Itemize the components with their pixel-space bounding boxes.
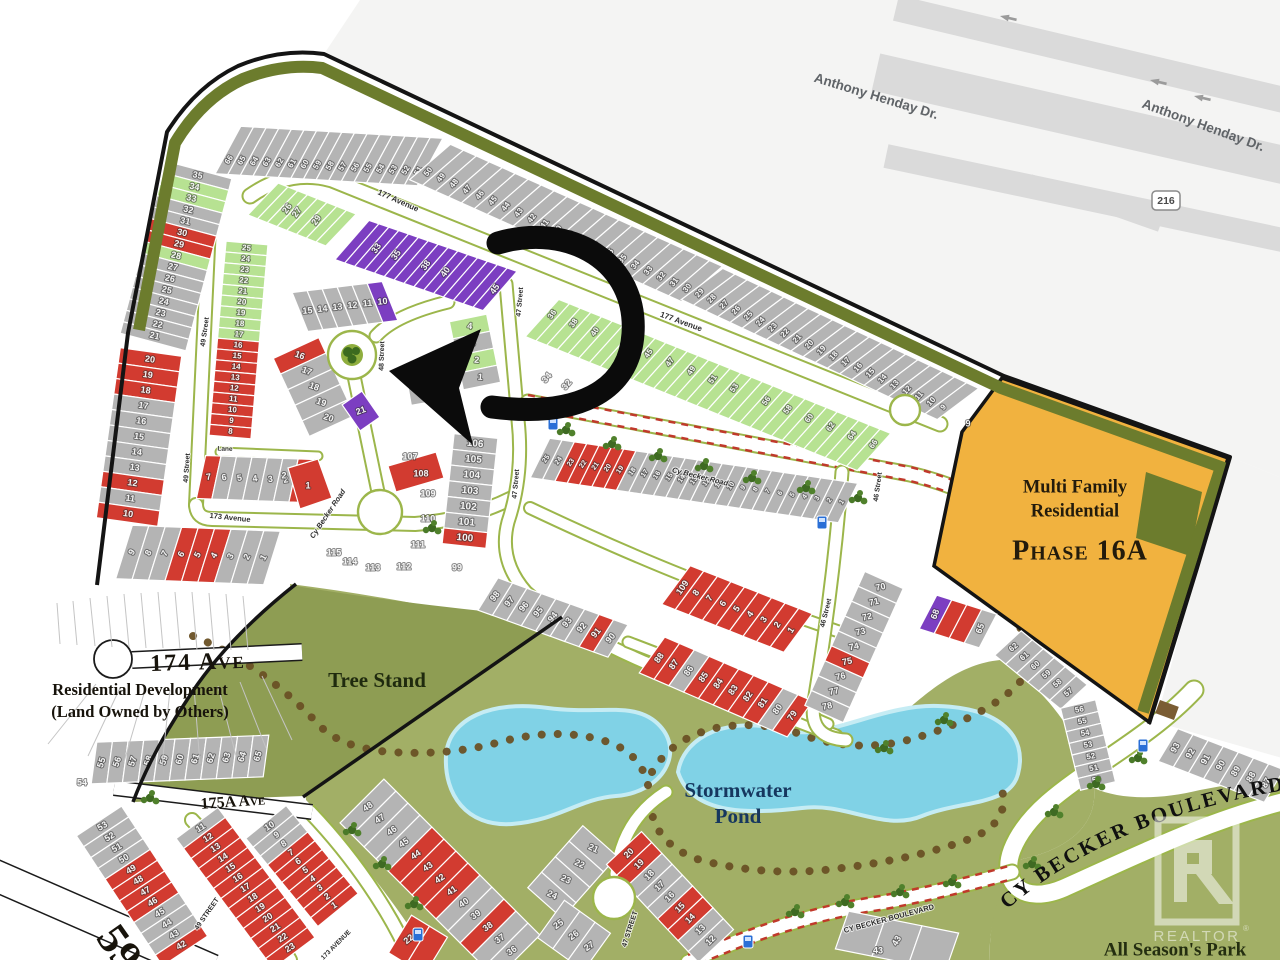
lot-number: 105 [465, 454, 483, 466]
lot-number: 31 [179, 215, 191, 227]
bus-stop-icon [743, 935, 753, 948]
lot-number: 102 [459, 501, 477, 513]
lot-number: 22 [152, 318, 164, 330]
street-label: Lane [217, 445, 233, 453]
lot-number: 14 [317, 303, 328, 314]
block-west-row-s: 987654321 [116, 525, 281, 584]
lot-number: 107 [402, 451, 417, 461]
lot-number: 10 [377, 296, 388, 307]
bus-stop-icon [1138, 739, 1148, 752]
label-res-dev-2: (Land Owned by Others) [51, 702, 228, 721]
lot-number: 13 [230, 372, 240, 382]
lot-number: 17 [138, 400, 149, 411]
realtor-logo-r [1174, 864, 1212, 874]
lot-number: 113 [366, 562, 381, 572]
lot-number: 25 [242, 243, 252, 253]
lot-number: 75 [841, 655, 853, 667]
plat-map-svg: 6665646362616059585756555453525150494847… [0, 0, 1280, 960]
lot-number: 18 [235, 319, 245, 329]
bus-stop-icon [413, 928, 423, 941]
lot-number: 4 [467, 321, 473, 331]
lot-number: 15 [232, 351, 242, 361]
label-mf-2: Residential [1031, 501, 1119, 521]
lot-number: 112 [397, 561, 412, 571]
lot-number: 22 [239, 275, 249, 285]
lot-number: 9 [965, 418, 970, 428]
label-res-dev-1: Residential Development [52, 680, 228, 699]
realtor-wordmark: REALTOR [1154, 928, 1241, 945]
lot-number: 12 [127, 477, 138, 488]
label-phase: Phase 16A [1012, 535, 1148, 566]
lot-number: 99 [452, 562, 462, 572]
label-tree-stand: Tree Stand [328, 668, 426, 692]
lot-number: 71 [868, 596, 880, 608]
lot-number: 78 [821, 700, 833, 712]
lot-number: 11 [362, 298, 372, 309]
plat-map: 6665646362616059585756555453525150494847… [0, 0, 1280, 960]
lot-number: 72 [861, 611, 873, 623]
lot-number: 100 [456, 532, 474, 544]
lot-number: 29 [173, 238, 185, 250]
lot-number: 28 [170, 249, 182, 261]
lot-number: 32 [182, 204, 194, 216]
cul-de-sac-bulb [94, 640, 132, 678]
lot-number: 74 [848, 640, 860, 652]
lot-number: 73 [855, 626, 867, 638]
lot-number: 10 [123, 508, 134, 519]
lot-number: 114 [343, 556, 358, 566]
lot-number: 15 [302, 305, 313, 316]
lot-number: 11 [125, 493, 136, 504]
lot-number: 23 [240, 265, 250, 275]
lot-number: 1 [305, 480, 310, 490]
tree-icon [352, 347, 360, 355]
registered-symbol: ® [1243, 924, 1249, 933]
lot-number: 12 [229, 383, 239, 393]
lot-number: 108 [413, 468, 428, 478]
lot-number: 15 [133, 431, 144, 442]
lot-number: 17 [234, 329, 244, 339]
lot-number: 19 [236, 308, 246, 318]
highway-216-shield: 216 [1152, 191, 1180, 210]
lot-number: 27 [167, 261, 179, 273]
cul-de-sac-bulb [890, 395, 920, 425]
lot-number: 101 [458, 516, 476, 528]
lot-number: 13 [332, 301, 343, 312]
road-lane [220, 452, 318, 456]
lot-number: 24 [241, 254, 251, 264]
label-mf-1: Multi Family [1023, 477, 1128, 497]
lot-number: 14 [131, 446, 142, 457]
lot-number: 25 [161, 284, 173, 296]
cul-de-sac-bulb [593, 877, 635, 919]
lot-number: 115 [327, 547, 342, 557]
shield-number: 216 [1157, 195, 1175, 207]
lot-number: 104 [463, 469, 481, 481]
lot-number: 16 [233, 340, 243, 350]
lot-number: 21 [149, 330, 161, 342]
cul-de-sac-bulb [328, 331, 376, 379]
label-stormwater: Stormwater [684, 778, 791, 802]
lot-number: 14 [231, 362, 241, 372]
label-pond: Pond [715, 804, 762, 828]
lot-number: 11 [229, 394, 239, 404]
lot-number: 54 [77, 777, 87, 787]
lot-number: 30 [176, 227, 188, 239]
lot-number: 77 [828, 685, 840, 697]
lot-number: 2 [281, 470, 286, 480]
lot-number: 13 [129, 462, 140, 473]
lot-number: 16 [136, 415, 147, 426]
lot-number: 19 [142, 369, 153, 380]
lot-number: 103 [461, 485, 479, 497]
lot-number: 20 [144, 353, 155, 364]
lot-number: 35 [192, 169, 204, 181]
lot-number: 1 [477, 372, 483, 382]
lot-number: 34 [189, 181, 201, 193]
lot-number: 76 [835, 670, 847, 682]
tree-icon [348, 355, 357, 364]
lot-number: 12 [347, 300, 358, 311]
cul-de-sac-bulb [358, 490, 402, 534]
bus-stop-icon [817, 516, 827, 529]
lot-number: 43 [873, 945, 883, 955]
lot-number: 26 [164, 272, 176, 284]
label-174-ave: 174 Ave [150, 648, 246, 677]
lot-number: 111 [411, 539, 425, 549]
lot-number: 21 [238, 286, 248, 296]
lot-number: 20 [237, 297, 247, 307]
street-label: 48 Street [378, 340, 386, 370]
lot-number: 2 [474, 355, 480, 365]
lot-number: 23 [155, 307, 167, 319]
lot-number: 10 [228, 405, 238, 415]
block-row-55: 5556575859606162636465 [91, 735, 269, 784]
lot-number: 24 [158, 295, 170, 307]
lot-number: 33 [186, 192, 198, 204]
lot-number: 70 [875, 581, 887, 593]
lot-number: 18 [140, 384, 151, 395]
lot-number: 109 [420, 488, 435, 498]
